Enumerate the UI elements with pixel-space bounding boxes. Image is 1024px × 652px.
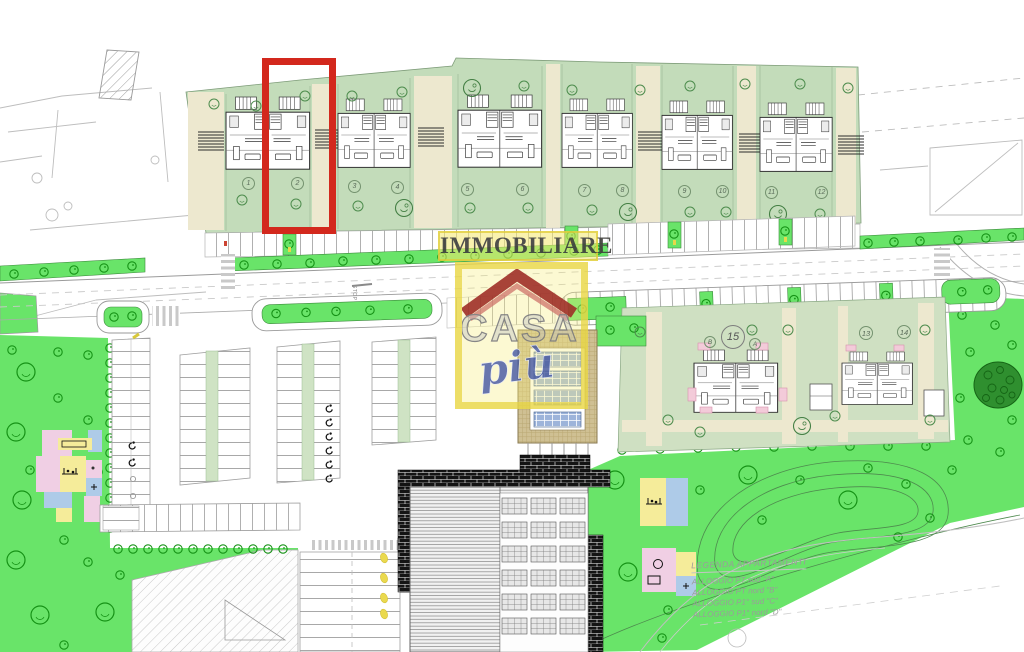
unit-badge-14: 14 bbox=[897, 325, 911, 339]
unit-badge-5: 5 bbox=[461, 183, 474, 196]
path-crossing bbox=[312, 540, 398, 550]
watermark-house-icon: CASA più bbox=[455, 262, 588, 409]
parking-island-c bbox=[97, 301, 149, 333]
unit-badge-3: 3 bbox=[348, 180, 361, 193]
unit-badge-13: 13 bbox=[859, 326, 873, 340]
unit-badge-9: 9 bbox=[678, 185, 691, 198]
unit-badge-10: 10 bbox=[716, 185, 729, 198]
paint-mark bbox=[133, 334, 139, 338]
stop-road-marking: STOP bbox=[351, 285, 357, 301]
unit-badge-15a: A bbox=[749, 338, 761, 350]
legend-title: LEGENDA APPARTAMENTI bbox=[691, 556, 806, 573]
unit-badge-8: 8 bbox=[616, 184, 629, 197]
unit-badge-12: 12 bbox=[815, 186, 828, 199]
watermark-logo: IMMOBILIARE CASA più bbox=[437, 231, 601, 409]
highlight-rectangle bbox=[262, 58, 336, 234]
watermark-piu-text: più bbox=[476, 338, 557, 396]
crosswalk-left bbox=[221, 254, 235, 292]
unit-badge-1: 1 bbox=[242, 177, 255, 190]
unit-badge-4: 4 bbox=[391, 181, 404, 194]
unit-badge-15: 15 bbox=[721, 325, 745, 349]
parking-island-a bbox=[252, 293, 443, 332]
warehouse-building bbox=[398, 455, 610, 652]
apartment-legend: LEGENDA APPARTAMENTI ALLOGGIO PT sud "A"… bbox=[691, 552, 943, 621]
site-plan: 1 2 3 4 5 6 7 8 9 10 11 12 15 B A 13 14 … bbox=[0, 0, 1024, 652]
south-residential-area bbox=[596, 297, 950, 452]
bush-cluster bbox=[974, 362, 1022, 408]
crosswalk-south bbox=[152, 306, 180, 326]
unit-badge-6: 6 bbox=[516, 183, 529, 196]
unit-badge-7: 7 bbox=[578, 184, 591, 197]
unit-badge-15b: B bbox=[704, 336, 716, 348]
watermark-brand-text: IMMOBILIARE bbox=[438, 231, 598, 261]
crosswalk-right bbox=[934, 248, 950, 284]
unit-badge-11: 11 bbox=[765, 186, 778, 199]
